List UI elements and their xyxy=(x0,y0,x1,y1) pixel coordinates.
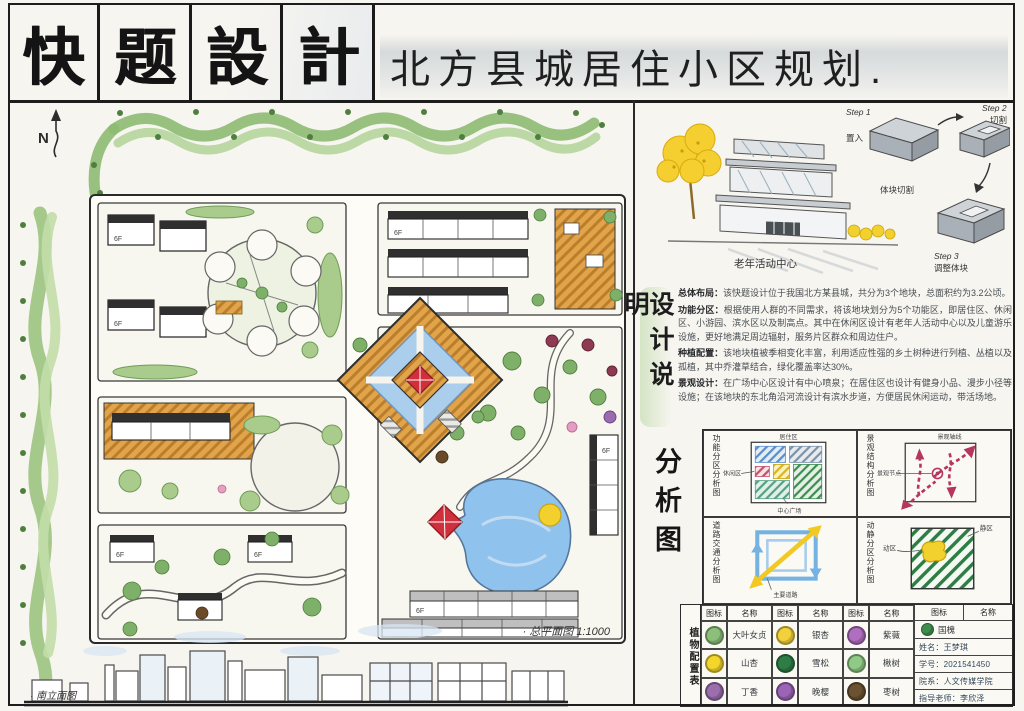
massing-step-3: Step 3 调整体块 xyxy=(934,199,1004,273)
plant-name-cell: 晚樱 xyxy=(798,678,843,706)
plant-icon-cell xyxy=(843,649,869,677)
traffic-label: 主要道路 xyxy=(773,591,797,599)
plant-entry: 国槐 xyxy=(915,621,1012,639)
plant-icon xyxy=(776,654,795,673)
building-cluster: 6F xyxy=(110,535,154,562)
paragraph-text: 在广场中心区设计有中心喷泉；在居住区也设计有健身小品、漫步小径等设施；在该地块的… xyxy=(678,378,1012,402)
massing-step-2: Step 2 切割 xyxy=(960,103,1010,157)
logo-char: 快 xyxy=(8,3,100,100)
step-label: Step 2 xyxy=(982,103,1007,113)
floor-label: 6F xyxy=(254,552,262,559)
plant-name-cell: 丁香 xyxy=(727,678,772,706)
description-paragraph: 景观设计：在广场中心区设计有中心喷泉；在居住区也设计有健身小品、漫步小径等设施；… xyxy=(678,377,1012,404)
floor-label: 6F xyxy=(394,230,402,237)
parcel-northwest-residential: 6F 6F xyxy=(98,203,346,381)
building-row xyxy=(388,249,528,277)
left-green-belt xyxy=(20,213,55,695)
analysis-panel-traffic: 道路交通分析图 主要道路 xyxy=(703,517,857,604)
quiet-active-diagram: 动区 静区 xyxy=(875,518,1010,603)
plant-icon xyxy=(921,623,934,636)
paragraph-text: 该快题设计位于我国北方某县城，共分为3个地块，总面积约为3.2公顷。 xyxy=(723,288,1011,298)
plant-name-cell: 大叶女贞 xyxy=(727,621,772,649)
plant-name-cell: 枣树 xyxy=(869,678,914,706)
analysis-panel-quiet-active: 动静分区分析图 动区 静区 xyxy=(857,517,1011,604)
description-paragraph: 功能分区：根据使用人群的不同需求，将该地块划分为5个功能区，即居住区、休闲区、小… xyxy=(678,304,1012,345)
plant-icon-cell xyxy=(843,621,869,649)
plant-icon xyxy=(705,626,724,645)
legend-header: 名称 xyxy=(798,605,843,621)
function-zoning-diagram: 居住区 休闲区 中心广场 xyxy=(721,431,856,516)
plant-icon-cell xyxy=(701,621,727,649)
north-arrow: N xyxy=(38,109,61,157)
info-student-id: 学号：2021541450 xyxy=(915,656,1012,673)
traffic-diagram: 主要道路 xyxy=(721,518,856,603)
paragraph-label: 功能分区： xyxy=(678,305,724,315)
plant-icon-cell xyxy=(701,649,727,677)
legend-header: 图标 xyxy=(843,605,869,621)
zone-label: 静区 xyxy=(980,523,994,532)
elevation-caption: · 南立面图 xyxy=(30,690,78,702)
zone-label: 中心广场 xyxy=(777,507,801,515)
panel-title: 功能分区分析图 xyxy=(704,431,721,516)
step-label: Step 1 xyxy=(846,107,871,117)
perspective-caption: 老年活动中心 xyxy=(734,257,797,270)
south-elevation xyxy=(24,651,568,706)
legend-grid: 图标 名称 图标 名称 图标 名称 大叶女贞 银杏 紫薇 山杏 雪松 楸树 丁香… xyxy=(701,605,914,706)
plant-name-cell: 银杏 xyxy=(798,621,843,649)
plant-name-cell: 山杏 xyxy=(727,649,772,677)
legend-right-column: 图标 名称 国槐 姓名：王梦琪 学号：2021541450 院系：人文传媒学院 … xyxy=(914,605,1012,706)
paragraph-label: 种植配置： xyxy=(678,348,723,358)
legend-header: 名称 xyxy=(869,605,914,621)
pond-island xyxy=(539,504,561,526)
plant-icon-cell xyxy=(843,678,869,706)
plant-icon xyxy=(705,682,724,701)
column-divider xyxy=(633,100,635,706)
step-label: Step 3 xyxy=(934,251,959,261)
page-title: 北方县城居住小区规划. xyxy=(380,34,1008,98)
plant-legend-table: 植物配置表 图标 名称 图标 名称 图标 名称 大叶女贞 银杏 紫薇 山杏 雪松… xyxy=(680,604,1013,707)
plant-name-cell: 雪松 xyxy=(798,649,843,677)
design-description: 设计说明 总体布局：该快题设计位于我国北方某县城，共分为3个地块，总面积约为3.… xyxy=(640,287,1012,427)
zone-label: 居住区 xyxy=(779,433,797,441)
plant-icon xyxy=(847,654,866,673)
description-title: 设计说明 xyxy=(640,287,672,427)
paragraph-label: 总体布局： xyxy=(678,288,723,298)
panel-title: 景观结构分析图 xyxy=(858,431,875,516)
parcel-southwest-residential: 6F 6F xyxy=(98,525,346,639)
panel-title: 动静分区分析图 xyxy=(858,518,875,603)
yellow-tree xyxy=(657,124,721,219)
plant-icon xyxy=(705,654,724,673)
legend-header-pair: 图标 名称 xyxy=(915,605,1012,621)
floor-label: 6F xyxy=(416,608,424,615)
massing-caption: 体块切割 xyxy=(880,185,914,195)
housing-column: 6F xyxy=(590,435,618,535)
master-plan-drawing: N xyxy=(10,95,632,709)
perspective-sketch: 老年活动中心 Step 1 置入 Step 2 切割 体块切割 Step 3 xyxy=(638,101,1010,285)
building-row: 6F xyxy=(388,211,528,239)
floor-label: 6F xyxy=(114,236,122,243)
legend-header: 图标 xyxy=(915,605,964,621)
plant-icon-cell xyxy=(772,678,798,706)
zone-label: 动区 xyxy=(883,544,897,552)
info-advisor: 指导老师：李欣泽 xyxy=(915,690,1012,706)
building-row xyxy=(388,287,508,313)
info-department: 院系：人文传媒学院 xyxy=(915,673,1012,690)
logo-char: 計 xyxy=(283,3,372,100)
legend-header: 名称 xyxy=(964,605,1012,621)
step-action: 置入 xyxy=(846,133,864,143)
plant-icon xyxy=(847,682,866,701)
landscape-structure-diagram: 景观轴线 景观节点 xyxy=(875,431,1010,516)
plant-name-cell: 国槐 xyxy=(938,624,955,636)
presentation-board: 快 题 設 計 北方县城居住小区规划. N xyxy=(0,0,1024,711)
plant-name-cell: 楸树 xyxy=(869,649,914,677)
paragraph-text: 该地块植被季相变化丰富，利用适应性强的乡土树种进行列植、丛植以及孤植，其中乔灌草… xyxy=(678,348,1012,372)
plant-icon xyxy=(776,682,795,701)
legend-title: 植物配置表 xyxy=(681,605,701,706)
analysis-title: 分析图 xyxy=(650,447,681,564)
plant-icon xyxy=(776,626,795,645)
legend-header: 图标 xyxy=(772,605,798,621)
panel-title: 道路交通分析图 xyxy=(704,518,721,603)
floor-label: 6F xyxy=(602,448,610,455)
plant-icon-cell xyxy=(701,678,727,706)
floor-label: 6F xyxy=(116,552,124,559)
logo-kuaiti-sheji: 快 题 設 計 xyxy=(8,3,375,100)
legend-header: 图标 xyxy=(701,605,727,621)
massing-step-1: Step 1 置入 xyxy=(846,107,938,161)
plant-name-cell: 紫薇 xyxy=(869,621,914,649)
info-name: 姓名：王梦琪 xyxy=(915,639,1012,656)
step-action: 调整体块 xyxy=(934,263,969,273)
analysis-table: 功能分区分析图 居住区 休闲区 中心广场 景观结构分析图 xyxy=(702,429,1012,605)
zone-label: 休闲区 xyxy=(723,470,741,478)
parcel-midwest-deck-lawn xyxy=(98,397,349,513)
paragraph-text: 根据使用人群的不同需求，将该地块划分为5个功能区，即居住区、休闲区、小游园、滨水… xyxy=(678,305,1012,342)
analysis-panel-function-zoning: 功能分区分析图 居住区 休闲区 中心广场 xyxy=(703,430,857,517)
legend-header: 名称 xyxy=(727,605,772,621)
logo-char: 题 xyxy=(100,3,192,100)
logo-char: 設 xyxy=(192,3,284,100)
paragraph-label: 景观设计： xyxy=(678,378,723,388)
top-green-belt xyxy=(91,109,605,207)
plant-icon xyxy=(847,626,866,645)
north-label: N xyxy=(38,130,49,147)
description-paragraph: 种植配置：该地块植被季相变化丰富，利用适应性强的乡土树种进行列植、丛植以及孤植，… xyxy=(678,347,1012,374)
housing-row: 6F xyxy=(410,591,578,617)
plant-icon-cell xyxy=(772,621,798,649)
plan-caption: · 总平面图 1:1000 xyxy=(523,625,611,638)
structure-label: 景观轴线 xyxy=(937,433,961,441)
floor-label: 6F xyxy=(114,321,122,328)
analysis-panel-landscape-structure: 景观结构分析图 景观轴线 景观节点 xyxy=(857,430,1011,517)
parcel-northeast-residential: 6F xyxy=(378,203,622,315)
plant-icon-cell xyxy=(772,649,798,677)
description-paragraph: 总体布局：该快题设计位于我国北方某县城，共分为3个地块，总面积约为3.2公顷。 xyxy=(678,287,1012,301)
